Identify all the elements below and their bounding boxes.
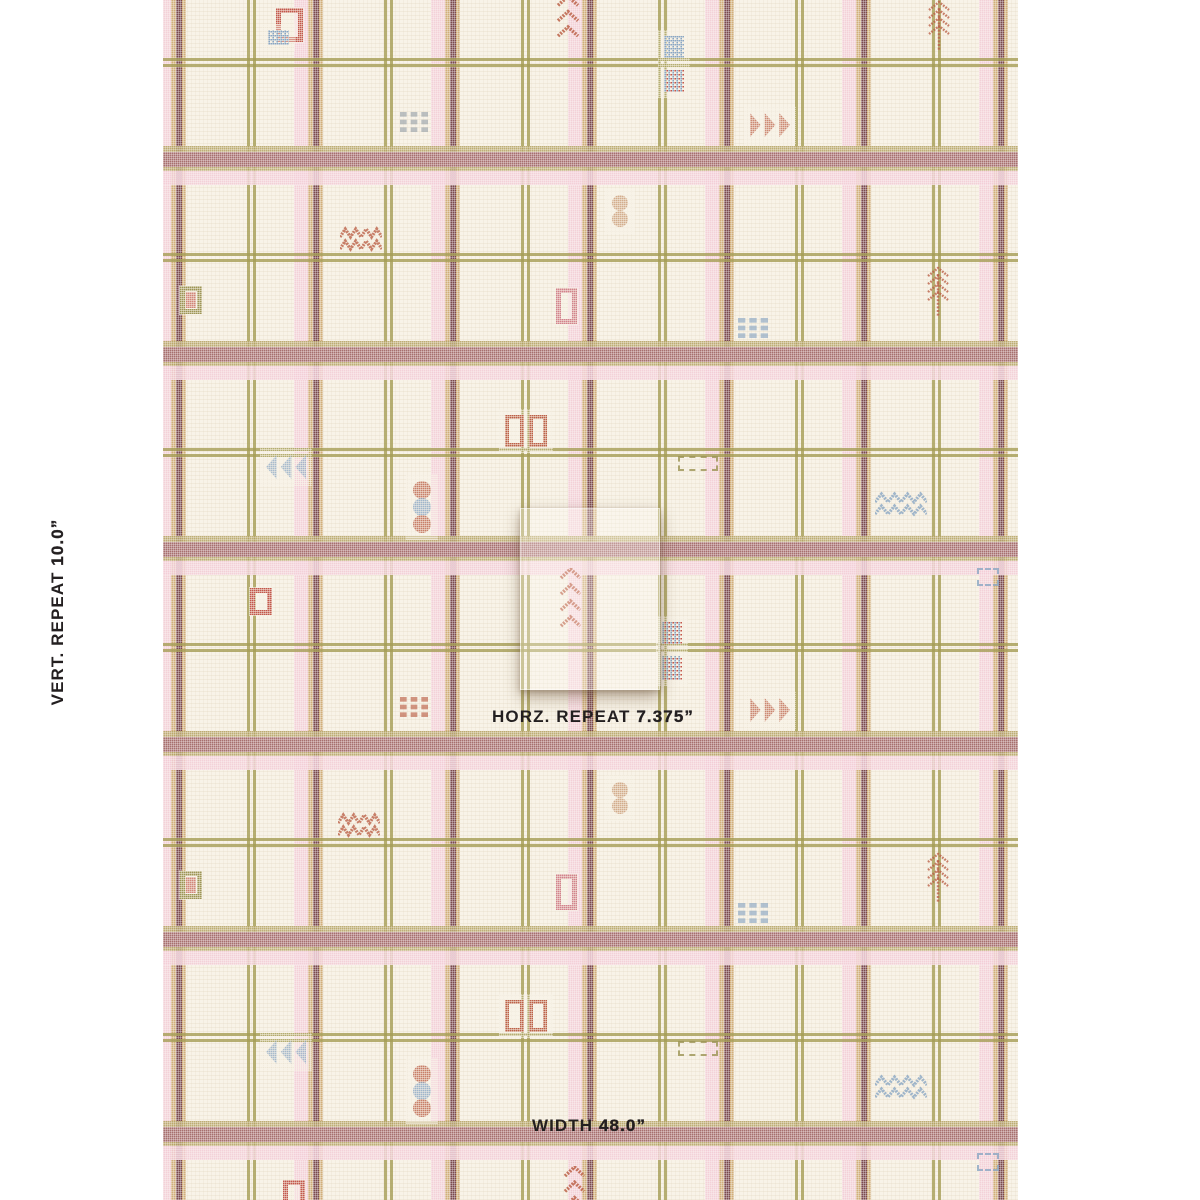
motif-grid-icon xyxy=(664,70,684,92)
horizontal-repeat-value: 7.375” xyxy=(636,707,694,726)
motif-grid9-icon xyxy=(400,697,428,717)
motif-frame-inner xyxy=(186,292,196,308)
stripe-pink-h xyxy=(163,951,1018,965)
motif-frame-icon xyxy=(180,286,202,314)
horizontal-repeat-label: HORZ. REPEAT 7.375” xyxy=(492,707,694,727)
motif-grid9-icon xyxy=(400,112,428,132)
vertical-repeat-text: VERT. REPEAT xyxy=(48,566,67,706)
stripe-pink-h xyxy=(163,171,1018,185)
motif-grid-icon xyxy=(662,656,682,680)
motif-zigzag-icon xyxy=(340,224,382,252)
horizontal-repeat-text: HORZ. REPEAT xyxy=(492,707,636,726)
vertical-repeat-value: 10.0” xyxy=(48,519,67,566)
repeat-highlight-swatch xyxy=(520,508,660,690)
motif-zigzag-icon xyxy=(338,810,380,838)
motif-dots2-icon xyxy=(611,781,629,815)
motif-frame-icon xyxy=(180,871,202,899)
motif-grid9-icon xyxy=(738,318,768,338)
motif-tri-left-icon xyxy=(266,454,306,480)
motif-feather-icon xyxy=(925,852,951,904)
motif-grid-icon xyxy=(268,30,289,45)
motif-tri-right-icon xyxy=(750,112,790,138)
motif-dots3-icon xyxy=(412,480,432,534)
stripe-pink-h xyxy=(163,1146,1018,1160)
motif-dots2-icon xyxy=(611,194,629,228)
motif-frame-icon xyxy=(556,288,577,324)
motif-frame-icon xyxy=(250,588,272,615)
motif-grid9-icon xyxy=(738,903,768,923)
motif-tri-right-icon xyxy=(750,697,790,723)
motif-frame-inner xyxy=(186,877,196,893)
motif-frame2-icon xyxy=(505,415,547,447)
stripe-pink-h xyxy=(163,756,1018,770)
motif-dashrect-icon xyxy=(678,1041,718,1056)
motif-dashsq-icon xyxy=(977,1153,999,1171)
motif-feather-icon xyxy=(925,266,951,318)
stripe-olive-h xyxy=(163,58,1018,67)
motif-dashrect-icon xyxy=(678,456,718,471)
motif-frame-icon xyxy=(556,874,577,910)
motif-subframe xyxy=(505,415,524,447)
stripe-maroon-h xyxy=(163,932,1018,947)
motif-zigzag-icon xyxy=(875,489,927,521)
motif-frame2-icon xyxy=(505,1000,547,1032)
stripe-maroon-h xyxy=(163,347,1018,362)
motif-feather-icon xyxy=(926,0,952,52)
motif-subframe xyxy=(505,1000,524,1032)
fabric-product-image: VERT. REPEAT 10.0” HORZ. REPEAT 7.375” W… xyxy=(0,0,1200,1200)
stripe-olive-h xyxy=(163,838,1018,847)
motif-chevrons-icon xyxy=(563,1166,586,1200)
width-label: WIDTH 48.0” xyxy=(532,1116,646,1136)
motif-frame-icon xyxy=(283,1180,305,1200)
stripe-olive-h xyxy=(163,253,1018,262)
motif-subframe xyxy=(529,415,548,447)
motif-dashsq-icon xyxy=(977,568,999,586)
stripe-maroon-h xyxy=(163,152,1018,167)
width-value: 48.0” xyxy=(599,1116,646,1135)
motif-chevrons-icon xyxy=(556,0,580,38)
motif-tri-left-icon xyxy=(266,1039,306,1065)
motif-subframe xyxy=(529,1000,548,1032)
vertical-repeat-label: VERT. REPEAT 10.0” xyxy=(48,519,68,706)
motif-grid-icon xyxy=(664,36,684,58)
motif-zigzag-icon xyxy=(875,1072,927,1104)
motif-dots3-icon xyxy=(412,1064,432,1118)
width-text: WIDTH xyxy=(532,1116,599,1135)
stripe-pink-h xyxy=(163,366,1018,380)
motif-grid-icon xyxy=(662,622,682,644)
stripe-maroon-h xyxy=(163,737,1018,752)
